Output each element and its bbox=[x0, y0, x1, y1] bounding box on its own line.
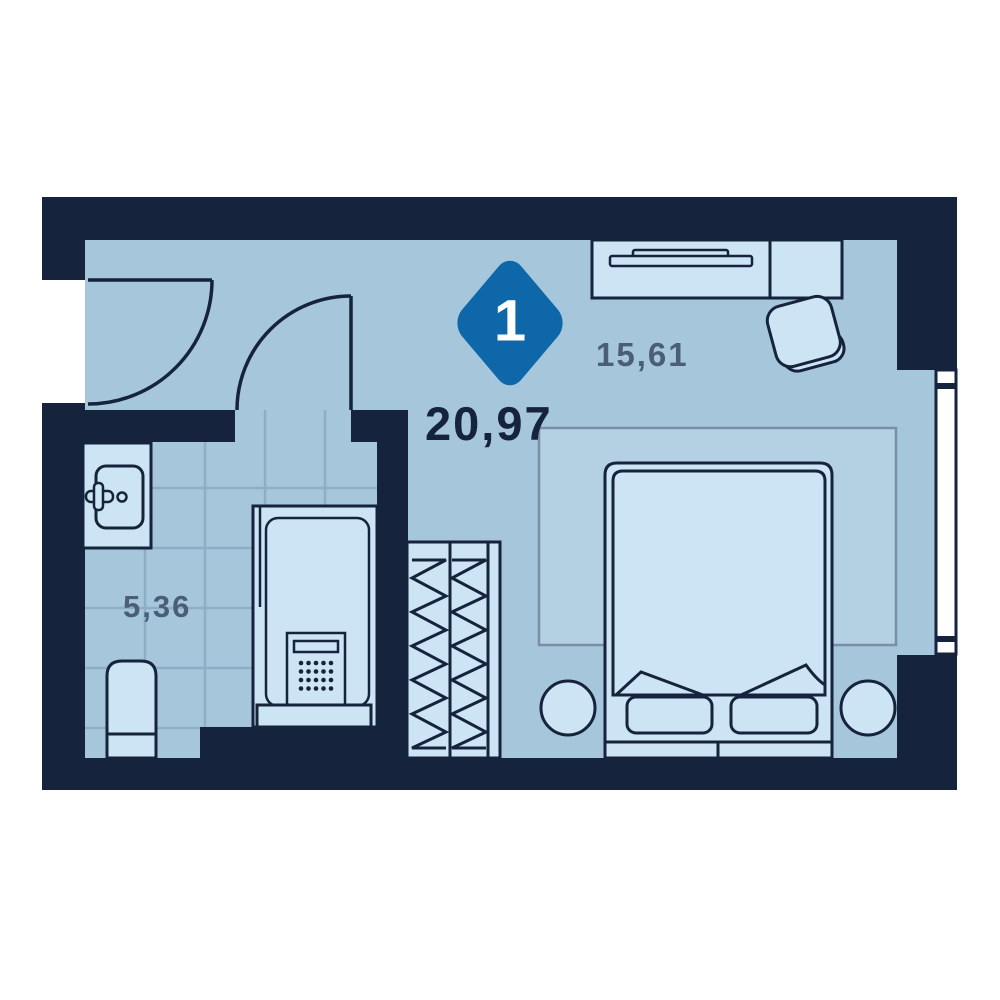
desk bbox=[592, 240, 842, 298]
room-count-label: 1 bbox=[494, 288, 526, 355]
bed bbox=[605, 463, 832, 758]
floor-plan-graphic bbox=[0, 0, 1000, 1000]
total-area-label: 20,97 bbox=[425, 396, 553, 451]
shower-cabin bbox=[253, 506, 377, 727]
nightstand-left bbox=[541, 681, 595, 735]
sink-vanity bbox=[83, 443, 151, 548]
pillow-left bbox=[627, 697, 712, 733]
floor-plan: 1 20,97 15,61 5,36 bbox=[0, 0, 1000, 1000]
pillow-right bbox=[731, 697, 817, 733]
bedroom-area-label: 15,61 bbox=[596, 336, 689, 374]
toilet bbox=[107, 661, 156, 758]
nightstand-right bbox=[841, 681, 895, 735]
bathroom-area-label: 5,36 bbox=[123, 589, 191, 625]
window bbox=[936, 370, 956, 654]
wardrobe bbox=[407, 542, 500, 758]
